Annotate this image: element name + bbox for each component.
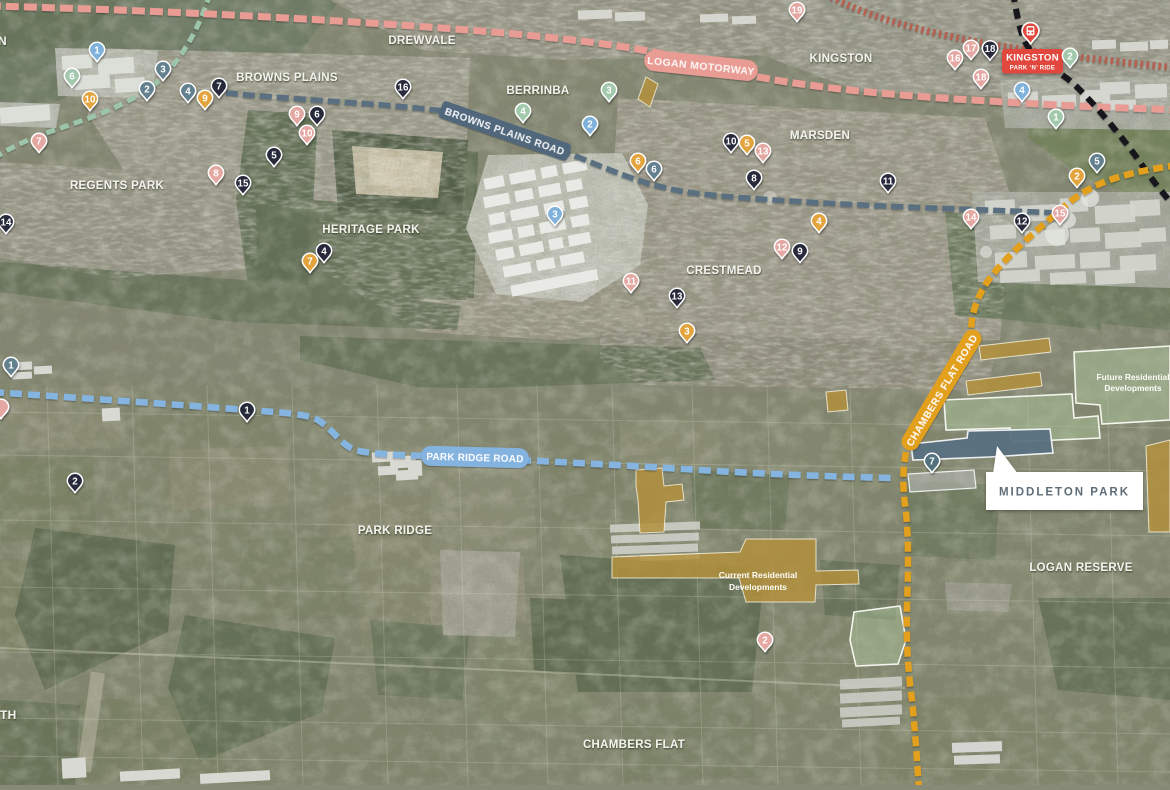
svg-text:16: 16 (398, 83, 409, 94)
svg-text:4: 4 (520, 107, 526, 118)
svg-text:2: 2 (587, 120, 593, 131)
svg-text:BERRINBA: BERRINBA (506, 85, 569, 97)
svg-text:4: 4 (185, 87, 191, 98)
svg-text:5: 5 (744, 139, 750, 150)
svg-text:18: 18 (976, 73, 987, 84)
svg-text:12: 12 (777, 243, 788, 254)
svg-text:KINGSTON: KINGSTON (1006, 53, 1059, 64)
svg-text:2: 2 (762, 636, 768, 647)
svg-text:7: 7 (36, 137, 42, 148)
svg-text:BROWNS PLAINS: BROWNS PLAINS (236, 72, 338, 84)
svg-text:5: 5 (271, 151, 277, 162)
svg-text:3: 3 (684, 327, 690, 338)
svg-text:14: 14 (966, 213, 977, 224)
svg-text:9: 9 (797, 247, 803, 258)
svg-text:3: 3 (606, 86, 612, 97)
svg-text:15: 15 (1055, 209, 1066, 220)
svg-text:KINGSTON: KINGSTON (810, 53, 873, 65)
svg-text:PARK RIDGE: PARK RIDGE (358, 525, 432, 537)
svg-text:2: 2 (144, 85, 150, 96)
svg-text:17: 17 (966, 44, 977, 55)
svg-text:PARK ‘N’ RIDE: PARK ‘N’ RIDE (1010, 66, 1055, 72)
svg-text:7: 7 (216, 82, 222, 93)
svg-text:3: 3 (552, 210, 558, 221)
svg-text:13: 13 (758, 147, 769, 158)
svg-text:CHAMBERS FLAT: CHAMBERS FLAT (583, 739, 685, 751)
svg-text:8: 8 (213, 169, 219, 180)
svg-text:HERITAGE PARK: HERITAGE PARK (322, 224, 420, 236)
svg-text:Current Residential: Current Residential (719, 570, 797, 580)
svg-text:MARSDEN: MARSDEN (790, 130, 850, 142)
svg-text:6: 6 (635, 157, 641, 168)
svg-text:N: N (0, 34, 7, 48)
svg-text:3: 3 (160, 65, 166, 76)
svg-text:10: 10 (302, 129, 313, 140)
svg-text:4: 4 (816, 217, 822, 228)
svg-text:DREWVALE: DREWVALE (388, 35, 455, 47)
svg-text:19: 19 (792, 6, 803, 17)
svg-text:6: 6 (69, 72, 75, 83)
svg-text:18: 18 (985, 44, 996, 55)
svg-text:10: 10 (726, 137, 737, 148)
svg-text:14: 14 (1, 218, 12, 229)
svg-text:16: 16 (950, 54, 961, 65)
svg-text:4: 4 (1019, 86, 1025, 97)
svg-text:1: 1 (8, 361, 14, 372)
svg-text:10: 10 (85, 95, 96, 106)
svg-text:6: 6 (651, 165, 657, 176)
svg-text:Future Residential: Future Residential (1096, 372, 1169, 382)
svg-text:TH: TH (0, 708, 17, 722)
svg-text:4: 4 (321, 247, 327, 258)
svg-text:1: 1 (1053, 113, 1059, 124)
svg-text:9: 9 (202, 94, 208, 105)
svg-text:1: 1 (94, 46, 100, 57)
svg-text:6: 6 (314, 110, 320, 121)
svg-text:9: 9 (294, 110, 300, 121)
svg-text:13: 13 (672, 292, 683, 303)
svg-text:CRESTMEAD: CRESTMEAD (686, 265, 762, 277)
svg-text:5: 5 (1094, 157, 1100, 168)
svg-text:11: 11 (626, 277, 637, 288)
svg-text:REGENTS PARK: REGENTS PARK (70, 180, 165, 192)
svg-text:12: 12 (1017, 217, 1028, 228)
svg-text:MIDDLETON PARK: MIDDLETON PARK (999, 487, 1130, 499)
svg-text:7: 7 (929, 457, 935, 468)
svg-text:Developments: Developments (1104, 383, 1162, 393)
svg-text:11: 11 (883, 177, 894, 188)
svg-text:1: 1 (244, 406, 250, 417)
svg-text:2: 2 (72, 477, 78, 488)
svg-text:2: 2 (1067, 52, 1073, 63)
svg-text:15: 15 (238, 179, 249, 190)
svg-text:2: 2 (1074, 172, 1080, 183)
svg-text:7: 7 (307, 257, 313, 268)
svg-text:Developments: Developments (729, 582, 787, 592)
svg-text:LOGAN RESERVE: LOGAN RESERVE (1029, 562, 1132, 574)
svg-text:8: 8 (751, 174, 757, 185)
